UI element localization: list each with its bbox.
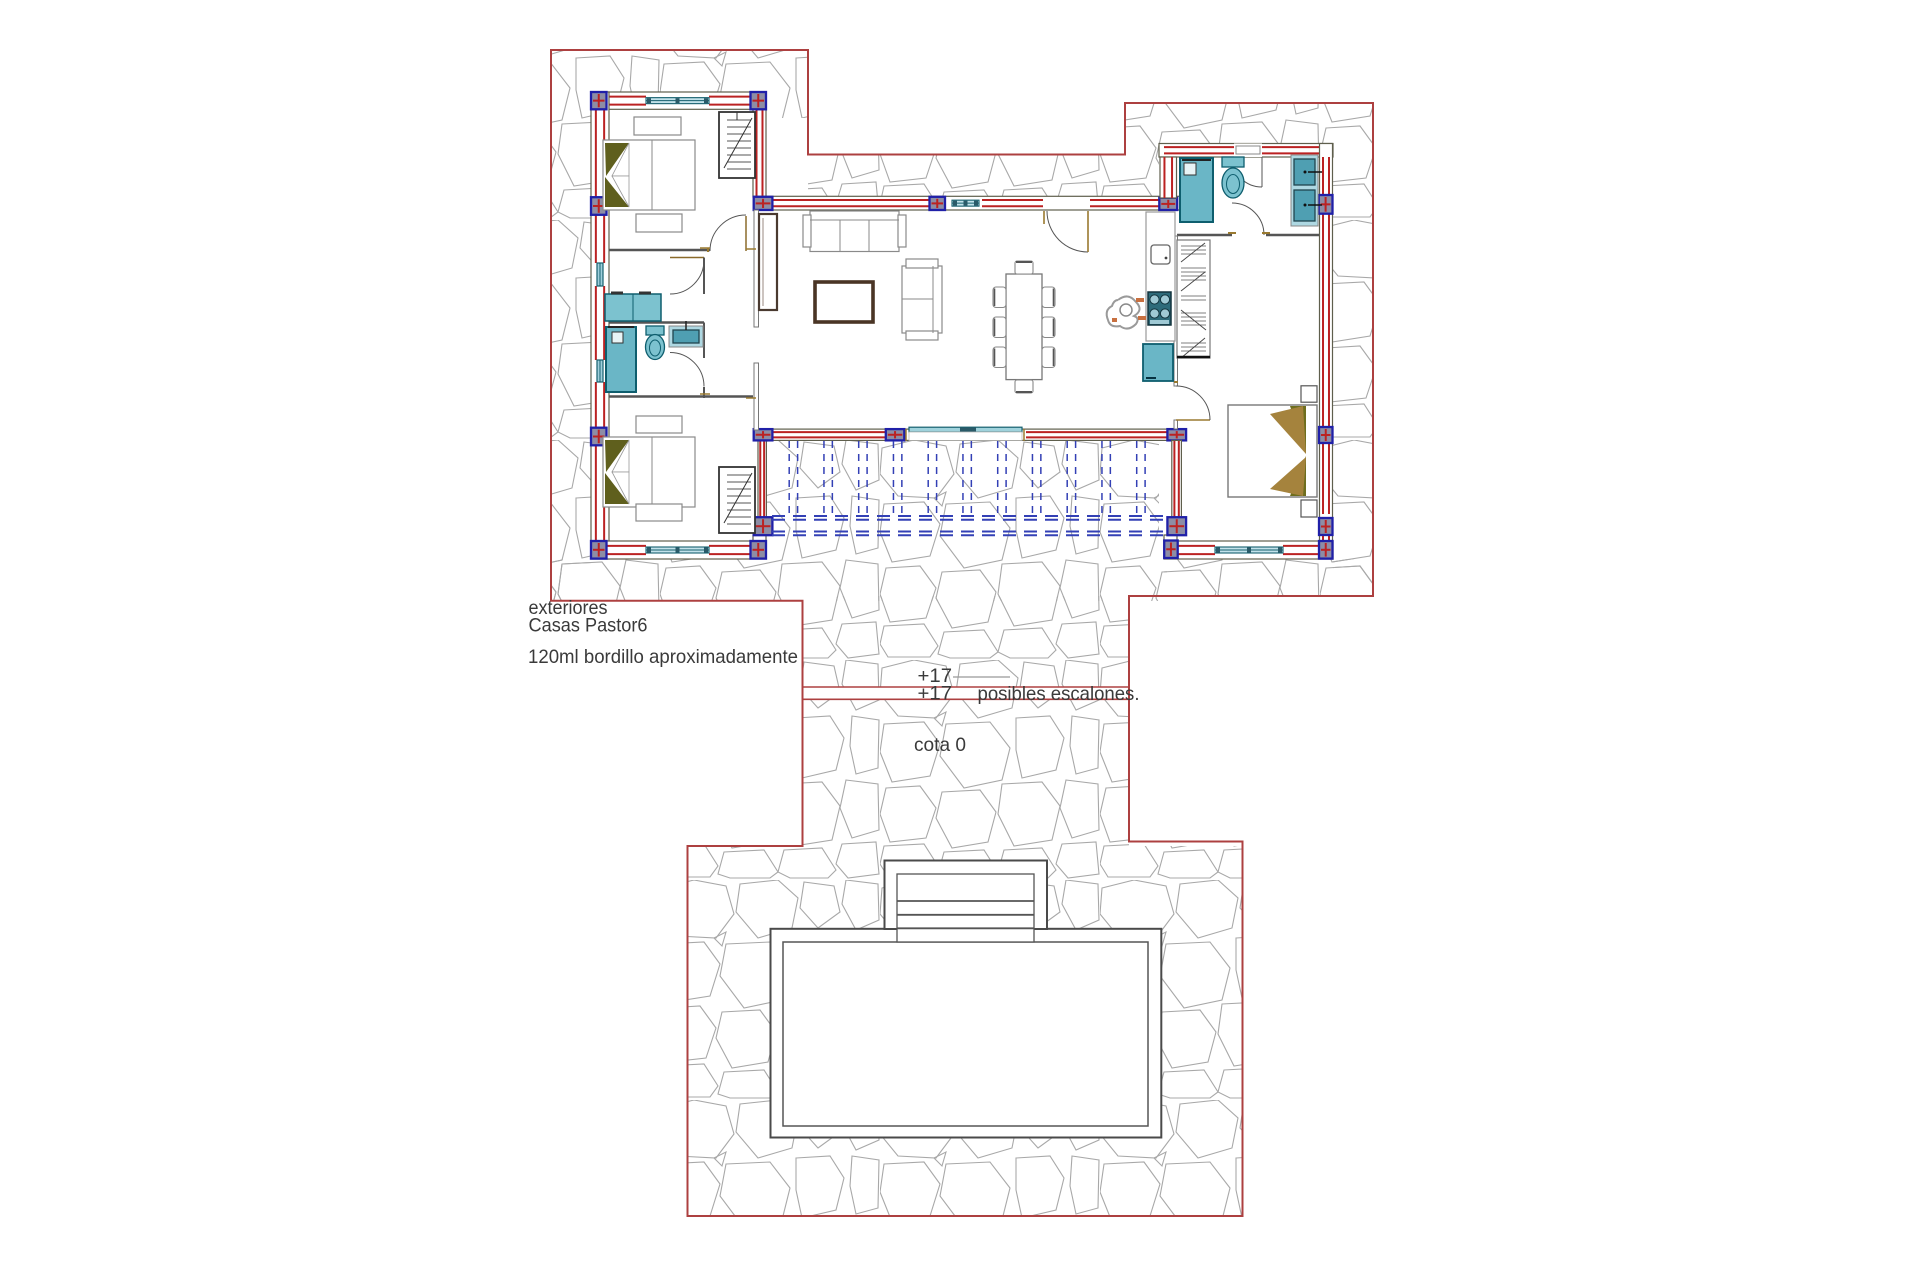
- svg-text:posibles escalones.: posibles escalones.: [978, 683, 1140, 705]
- svg-text:120ml bordillo aproximadamente: 120ml bordillo aproximadamente: [528, 646, 798, 668]
- svg-text:+17: +17: [918, 683, 953, 705]
- svg-text:cota 0: cota 0: [914, 734, 966, 756]
- svg-text:Casas Pastor6: Casas Pastor6: [529, 615, 648, 637]
